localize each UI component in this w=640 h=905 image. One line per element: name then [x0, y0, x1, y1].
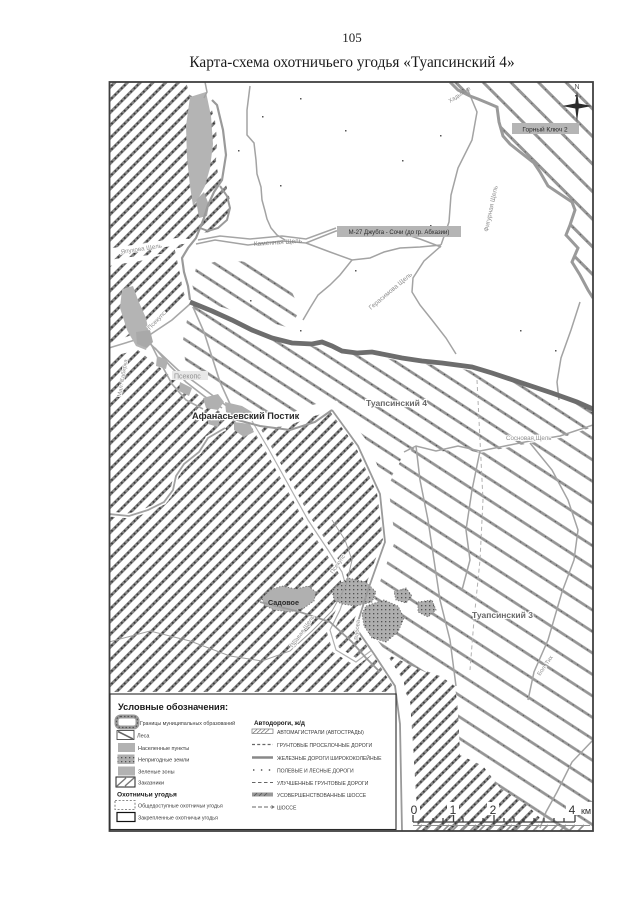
svg-text:Автодороги, ж/д: Автодороги, ж/д	[254, 720, 305, 727]
svg-text:Закрепленные охотничьи угодья: Закрепленные охотничьи угодья	[138, 816, 218, 822]
svg-text:М-27 Джубга - Сочи (до гр. Абх: М-27 Джубга - Сочи (до гр. Абхазии)	[349, 230, 450, 236]
svg-text:Условные обозначения:: Условные обозначения:	[118, 702, 228, 712]
svg-text:Горный Ключ 2: Горный Ключ 2	[522, 126, 568, 134]
svg-text:Охотничьи угодья: Охотничьи угодья	[117, 792, 177, 799]
svg-text:Карта-схема охотничьего угодья: Карта-схема охотничьего угодья «Туапсинс…	[189, 54, 514, 71]
svg-text:Сосновая Щель: Сосновая Щель	[506, 435, 551, 442]
svg-text:УСОВЕРШЕНСТВОВАННЫЕ ШОССЕ: УСОВЕРШЕНСТВОВАННЫЕ ШОССЕ	[277, 793, 367, 799]
svg-text:1: 1	[450, 803, 457, 817]
svg-text:Общедоступные охотничьи угодья: Общедоступные охотничьи угодья	[138, 804, 223, 810]
svg-text:Псекопс: Псекопс	[174, 374, 201, 381]
svg-text:2: 2	[490, 803, 497, 817]
svg-text:Зеленые зоны: Зеленые зоны	[138, 770, 175, 776]
svg-text:АВТОМАГИСТРАЛИ (АВТОСТРАДЫ): АВТОМАГИСТРАЛИ (АВТОСТРАДЫ)	[277, 730, 364, 736]
svg-text:Непригодные земли: Непригодные земли	[138, 758, 189, 764]
svg-text:Заказники: Заказники	[138, 781, 164, 787]
svg-text:Афанасьевский Постик: Афанасьевский Постик	[192, 411, 300, 421]
svg-text:ЖЕЛЕЗНЫЕ ДОРОГИ ШИРОКОКОЛЕЙНЫЕ: ЖЕЛЕЗНЫЕ ДОРОГИ ШИРОКОКОЛЕЙНЫЕ	[277, 754, 382, 762]
svg-text:ПОЛЕВЫЕ И ЛЕСНЫЕ ДОРОГИ: ПОЛЕВЫЕ И ЛЕСНЫЕ ДОРОГИ	[277, 769, 354, 775]
svg-text:N: N	[574, 84, 579, 91]
svg-text:4: 4	[569, 803, 576, 817]
svg-text:Леса: Леса	[137, 734, 150, 740]
svg-text:ШОССЕ: ШОССЕ	[277, 806, 297, 812]
svg-text:км: км	[581, 806, 591, 816]
svg-text:Туапсинский 4: Туапсинский 4	[366, 398, 427, 408]
svg-text:Туапсинский 3: Туапсинский 3	[472, 610, 533, 620]
svg-text:ГРУНТОВЫЕ ПРОСЕЛОЧНЫЕ ДОРОГИ: ГРУНТОВЫЕ ПРОСЕЛОЧНЫЕ ДОРОГИ	[277, 743, 373, 749]
svg-text:Садовое: Садовое	[268, 598, 299, 607]
svg-text:Границы муниципальных образова: Границы муниципальных образований	[140, 720, 235, 727]
svg-text:УЛУЧШЕННЫЕ ГРУНТОВЫЕ ДОРОГИ: УЛУЧШЕННЫЕ ГРУНТОВЫЕ ДОРОГИ	[277, 781, 369, 787]
svg-text:0: 0	[411, 803, 418, 817]
svg-text:Населенные пункты: Населенные пункты	[138, 746, 189, 752]
svg-text:105: 105	[342, 30, 362, 45]
